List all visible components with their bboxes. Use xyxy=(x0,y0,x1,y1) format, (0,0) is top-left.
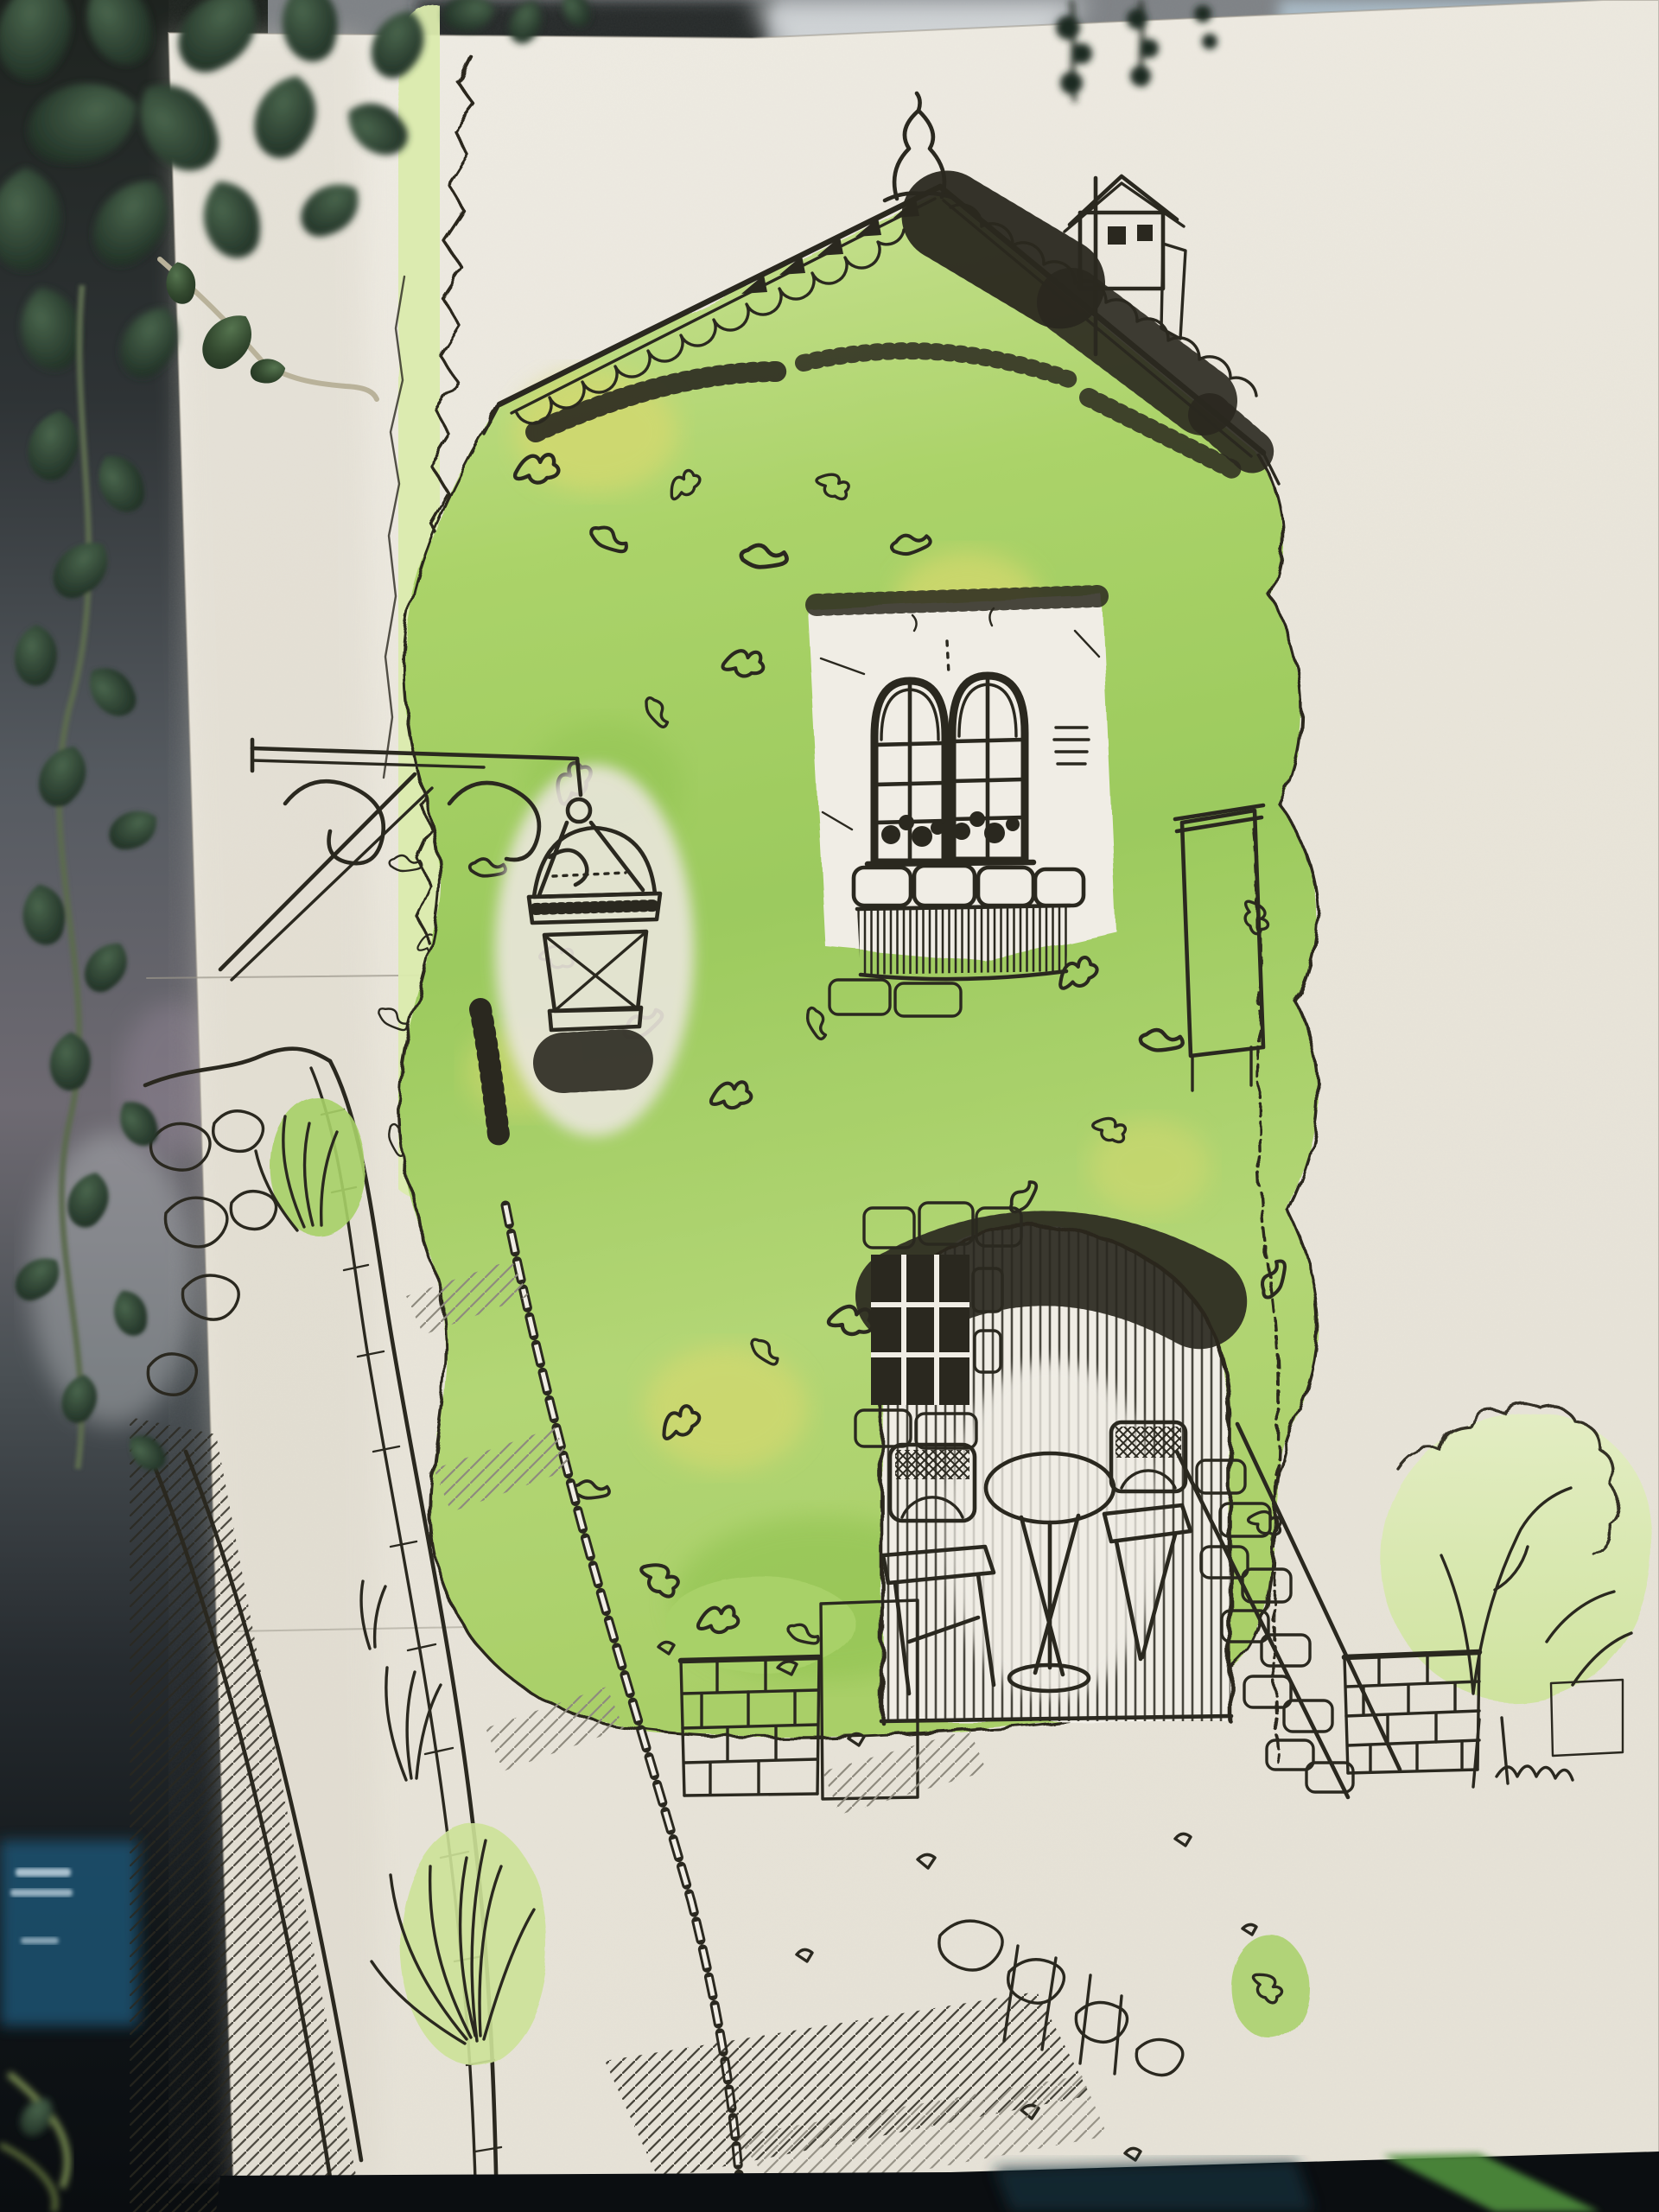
blue-reflection-patch xyxy=(0,1840,138,2026)
photo-of-sketch: Pen-and-ink and watercolor sketch of an … xyxy=(0,0,1659,2212)
hatched-ledge xyxy=(857,906,1070,975)
scene-svg xyxy=(0,0,1659,2212)
